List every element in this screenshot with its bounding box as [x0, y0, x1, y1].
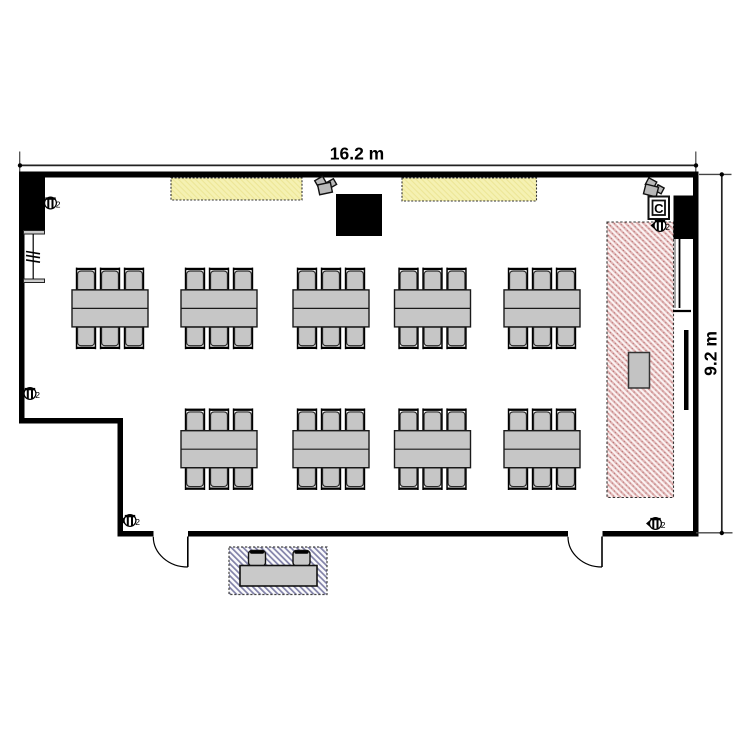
svg-text:9.2 m: 9.2 m [701, 331, 721, 376]
svg-text:C: C [654, 201, 664, 216]
svg-text:16.2 m: 16.2 m [330, 144, 384, 164]
